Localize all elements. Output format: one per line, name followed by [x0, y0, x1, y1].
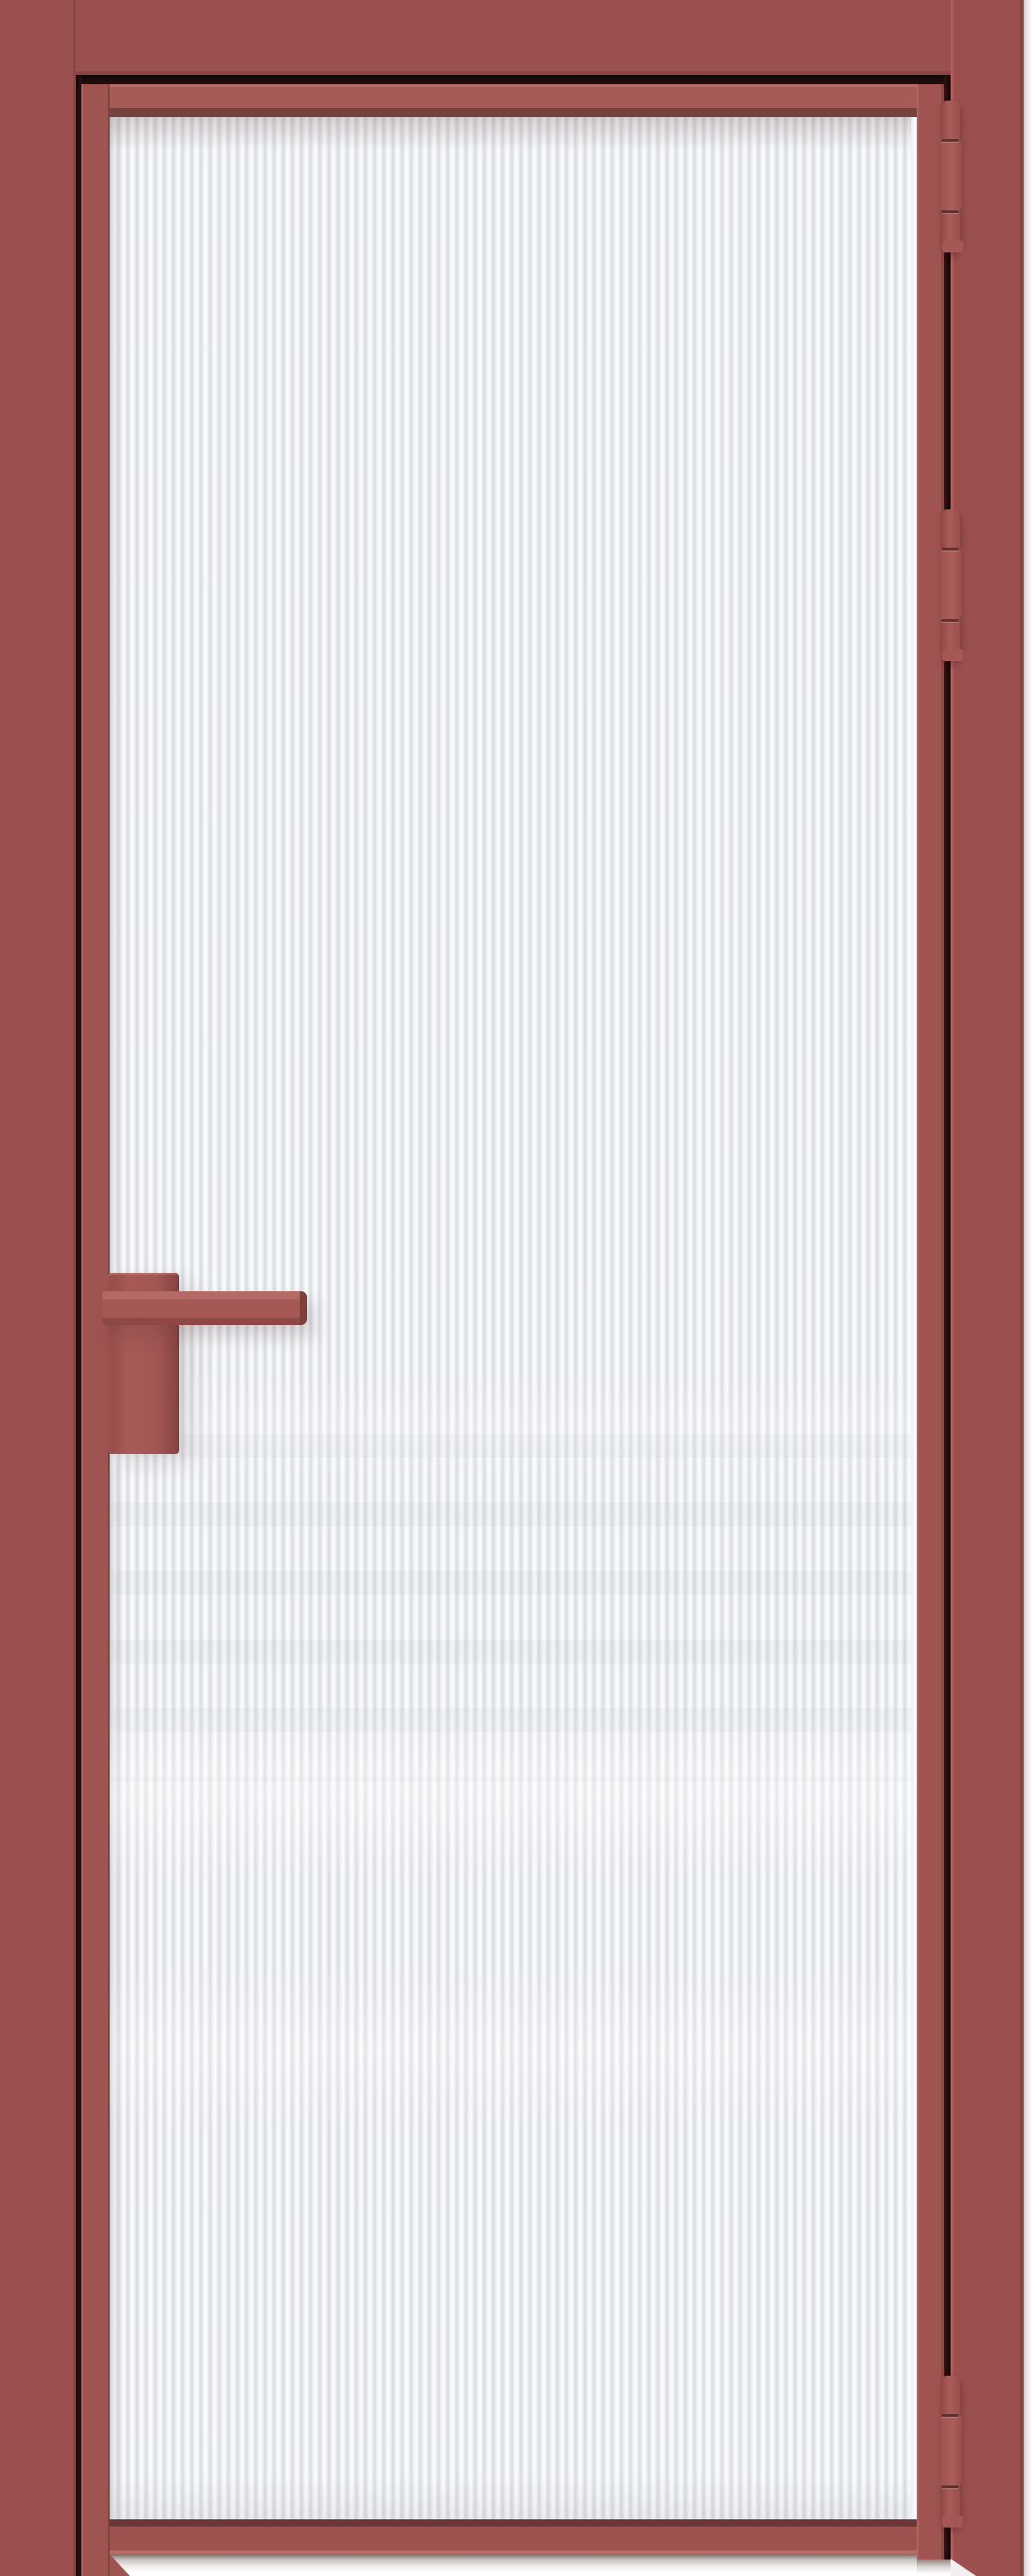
- hinge-middle: [941, 509, 960, 661]
- frame-left-jamb: [0, 0, 76, 2576]
- hinge-bottom: [941, 2376, 960, 2528]
- hinge-foot: [942, 2516, 963, 2528]
- hinge-foot: [942, 240, 963, 252]
- hinge-groove: [941, 139, 959, 142]
- floor-clearance-gap: [110, 2554, 917, 2576]
- handle-lever: [102, 1291, 307, 1325]
- rebate-gap-right: [944, 75, 951, 2560]
- hinge-groove: [941, 2485, 959, 2488]
- leaf-top-rail: [81, 84, 944, 108]
- stile-foot-bevel: [110, 2554, 130, 2576]
- hinge-knuckle: [941, 2414, 962, 2485]
- hinge-top: [941, 101, 960, 252]
- frame-right-jamb: [951, 0, 1024, 2576]
- door-product-image: [0, 0, 1031, 2576]
- hinge-knuckle: [941, 548, 962, 619]
- hinge-groove: [941, 2414, 959, 2417]
- glass-top-shadow: [110, 117, 911, 150]
- glass-sheen-band-3: [110, 1966, 911, 2131]
- rebate-gap-top: [76, 75, 951, 84]
- glass-bottom-shadow: [110, 2477, 911, 2519]
- hinge-knuckle: [941, 139, 962, 210]
- hinge-foot: [942, 649, 963, 661]
- casing-foot-bevel: [951, 2559, 976, 2576]
- leaf-right-stile: [917, 84, 944, 2560]
- top-rail-shadow: [110, 108, 917, 117]
- glass-edge-highlight: [911, 117, 917, 2519]
- floor-clearance-gap-right: [917, 2560, 951, 2576]
- bottom-rail-shadow: [110, 2519, 917, 2527]
- hinge-groove: [941, 619, 959, 622]
- glass-sheen-band-2: [110, 1701, 911, 1884]
- leaf-bottom-rail: [110, 2527, 917, 2554]
- hinge-groove: [941, 548, 959, 550]
- handle-lever-end-cap: [300, 1291, 307, 1325]
- glass-sheen-band-1: [110, 1372, 911, 1481]
- leaf-left-stile: [81, 84, 110, 2576]
- hinge-groove: [941, 210, 959, 213]
- frame-head-casing: [0, 0, 1024, 75]
- wall-edge-strip: [1024, 0, 1031, 2576]
